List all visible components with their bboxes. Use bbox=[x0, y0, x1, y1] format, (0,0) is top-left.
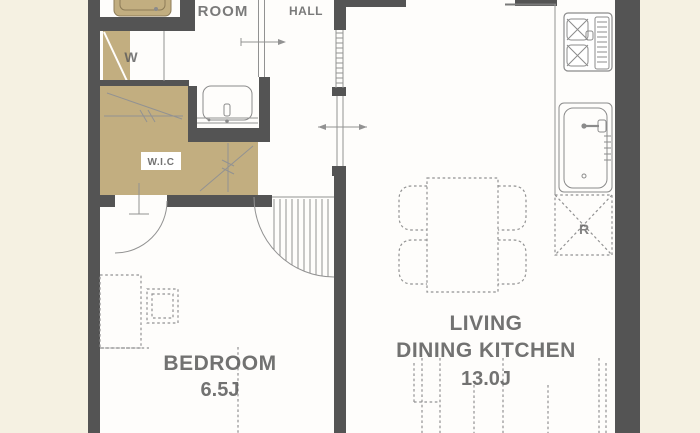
wic-label: W.I.C bbox=[148, 157, 175, 168]
floor-plan: ROOM HALL W W.I.C BEDROOM 6.5J LIVING DI… bbox=[0, 0, 700, 433]
ldk-label-line2: DINING KITCHEN bbox=[396, 339, 576, 362]
bedroom-size-label: 6.5J bbox=[201, 379, 240, 401]
wall-washroom-right bbox=[259, 77, 270, 142]
wall-bedroom-top-left bbox=[88, 195, 115, 207]
wall-vanity-bottom bbox=[188, 128, 270, 142]
wall-room-left-stub bbox=[180, 0, 195, 31]
toilet-flush-dot bbox=[154, 7, 158, 11]
vanity-knob-dot bbox=[208, 119, 211, 122]
wall-top-a bbox=[334, 0, 406, 7]
floor-plan-svg: ROOM HALL W W.I.C BEDROOM 6.5J LIVING DI… bbox=[0, 0, 700, 433]
hall-label: HALL bbox=[289, 4, 323, 18]
faucet-head bbox=[581, 123, 586, 128]
stove bbox=[564, 13, 612, 71]
toilet-fixture bbox=[114, 0, 171, 16]
washer-label: W bbox=[124, 49, 138, 65]
fridge-label: R bbox=[579, 221, 589, 237]
wall-outer-left bbox=[88, 0, 100, 433]
wall-hall-stub-lower bbox=[332, 166, 346, 176]
ldk-size-label: 13.0J bbox=[461, 368, 511, 390]
wall-wic-top bbox=[100, 80, 189, 86]
wall-vanity-left bbox=[188, 86, 197, 130]
wall-hall-stub-upper bbox=[332, 87, 346, 96]
toilet-bowl bbox=[114, 0, 171, 16]
bedroom-label: BEDROOM bbox=[163, 352, 276, 375]
ldk-label-line1: LIVING bbox=[449, 312, 522, 335]
room-label: ROOM bbox=[198, 3, 249, 20]
wall-bedroom-top-right bbox=[167, 195, 272, 207]
wall-toilet-bottom bbox=[88, 17, 195, 31]
wall-outer-right bbox=[615, 0, 640, 433]
vanity-drain-dot bbox=[225, 119, 229, 123]
wic-floor-left bbox=[100, 86, 188, 195]
wall-bedroom-ldk bbox=[334, 176, 346, 433]
